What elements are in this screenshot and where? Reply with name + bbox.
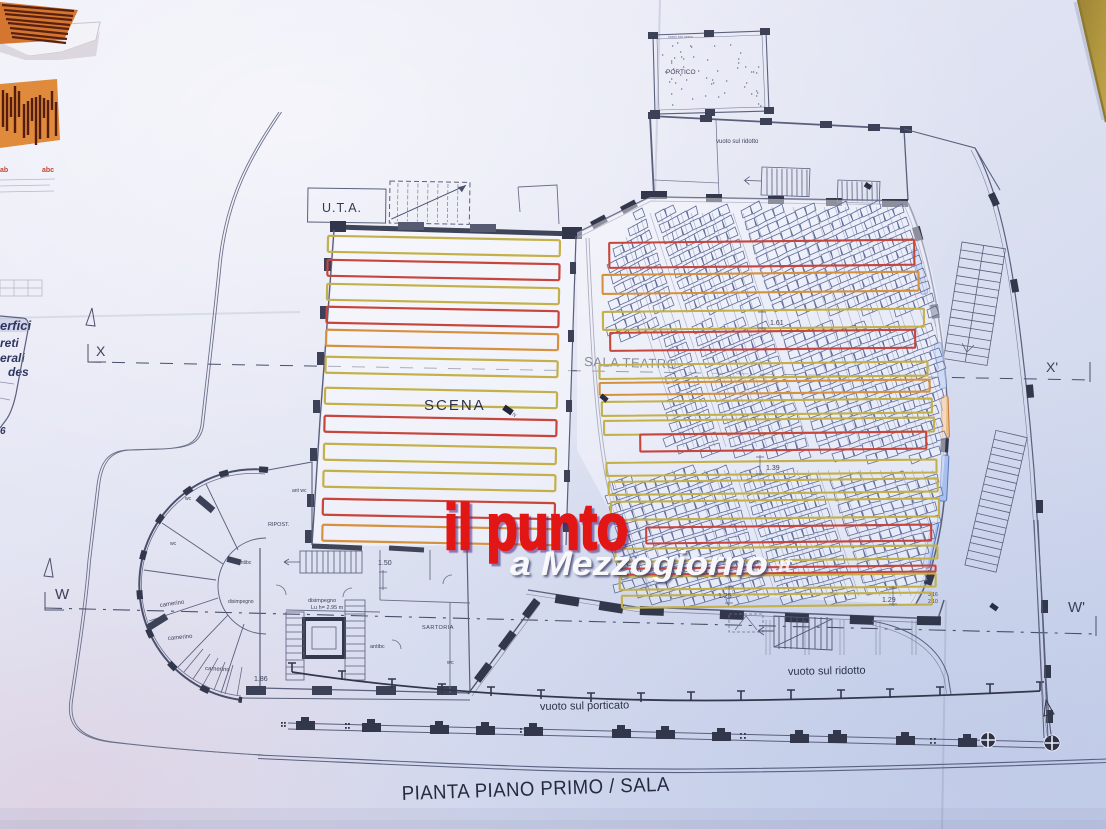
svg-text:1.25: 1.25 [718, 593, 732, 600]
svg-text:1.50: 1.50 [378, 560, 392, 567]
svg-text:1.29: 1.29 [882, 597, 896, 604]
svg-text:W': W' [1068, 599, 1085, 616]
svg-text:xxxxx xxx xxxxx: xxxxx xxx xxxxx [668, 35, 693, 39]
svg-text:1.61: 1.61 [770, 320, 784, 327]
svg-text:1.39: 1.39 [766, 465, 780, 472]
svg-text:Lu h= 2.95 m: Lu h= 2.95 m [311, 605, 344, 611]
svg-text:wc: wc [185, 496, 192, 502]
svg-text:SARTORIA: SARTORIA [422, 625, 454, 631]
svg-text:.it: .it [772, 552, 793, 577]
svg-text:RIPOST.: RIPOST. [268, 522, 290, 528]
svg-text:abc: abc [42, 167, 54, 174]
svg-text:PORTICO: PORTICO [666, 69, 696, 76]
svg-text:ab: ab [0, 167, 8, 174]
svg-text:reti: reti [0, 336, 19, 350]
svg-text:disimpegno: disimpegno [228, 599, 254, 605]
svg-text:X: X [96, 343, 106, 359]
svg-text:W: W [55, 586, 70, 603]
svg-text:vuoto sul porticato: vuoto sul porticato [540, 699, 629, 713]
svg-text:des: des [8, 365, 29, 379]
svg-text:vuoto sul ridotto: vuoto sul ridotto [716, 139, 759, 145]
svg-text:wc: wc [170, 541, 177, 547]
svg-text:U.T.A.: U.T.A. [322, 201, 362, 215]
svg-text:a Mezzogiorno: a Mezzogiorno [510, 545, 768, 583]
svg-text:ant wc: ant wc [292, 488, 307, 494]
svg-text:SCENA: SCENA [424, 397, 486, 414]
svg-text:1.86: 1.86 [254, 676, 268, 683]
svg-text:X': X' [1046, 359, 1058, 375]
svg-text:antibc: antibc [370, 644, 385, 650]
svg-text:wc: wc [446, 660, 454, 666]
svg-text:vuoto sul ridotto: vuoto sul ridotto [788, 665, 866, 678]
svg-text:disimpegno: disimpegno [308, 598, 336, 604]
